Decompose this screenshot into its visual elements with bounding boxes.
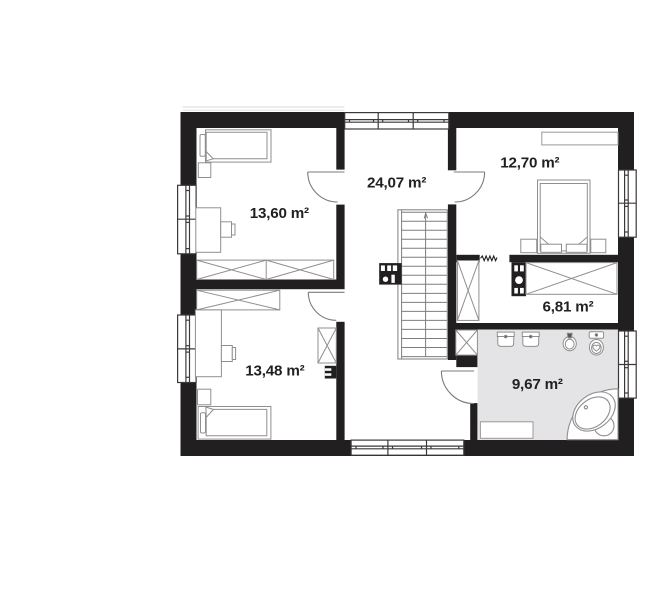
svg-text:24,07 m²: 24,07 m² [367,175,426,192]
svg-text:6,81 m²: 6,81 m² [543,299,594,316]
svg-text:13,48 m²: 13,48 m² [245,362,304,379]
svg-text:9,67 m²: 9,67 m² [512,376,563,393]
svg-text:12,70 m²: 12,70 m² [500,155,559,172]
svg-text:13,60 m²: 13,60 m² [250,205,309,222]
